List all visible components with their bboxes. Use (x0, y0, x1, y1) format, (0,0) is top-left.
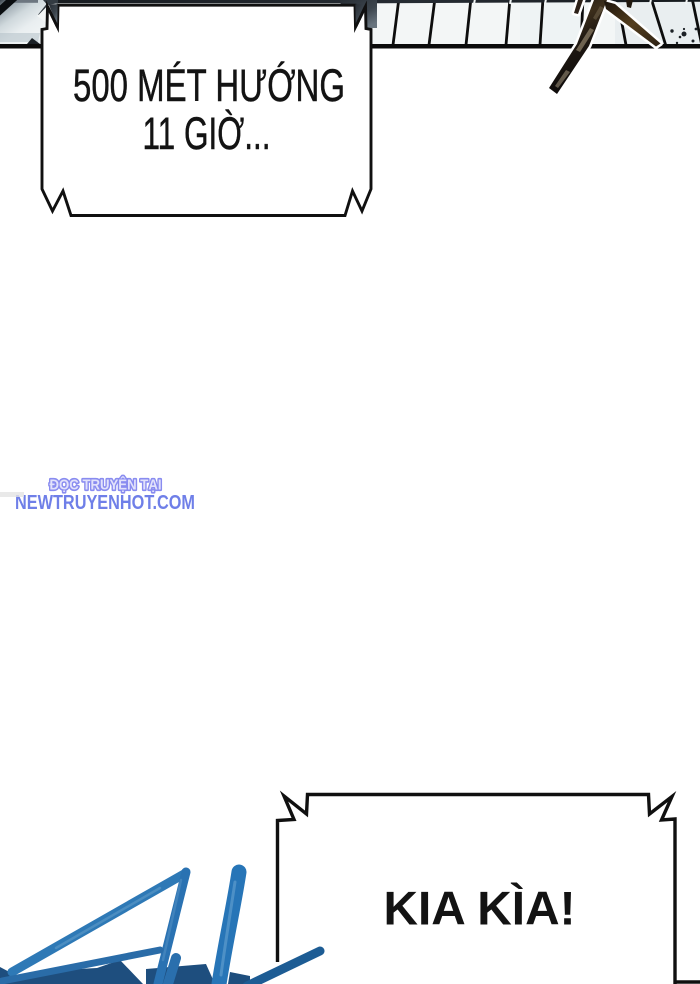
svg-text:KIA KÌA!: KIA KÌA! (384, 882, 576, 935)
svg-text:500 MÉT HƯỚNG: 500 MÉT HƯỚNG (73, 60, 345, 111)
svg-text:ĐỌC TRUYỆN TẠI: ĐỌC TRUYỆN TẠI (50, 476, 162, 494)
svg-text:11 GIỜ...: 11 GIỜ... (143, 108, 271, 159)
svg-text:NEWTRUYENHOT.COM: NEWTRUYENHOT.COM (15, 492, 195, 514)
